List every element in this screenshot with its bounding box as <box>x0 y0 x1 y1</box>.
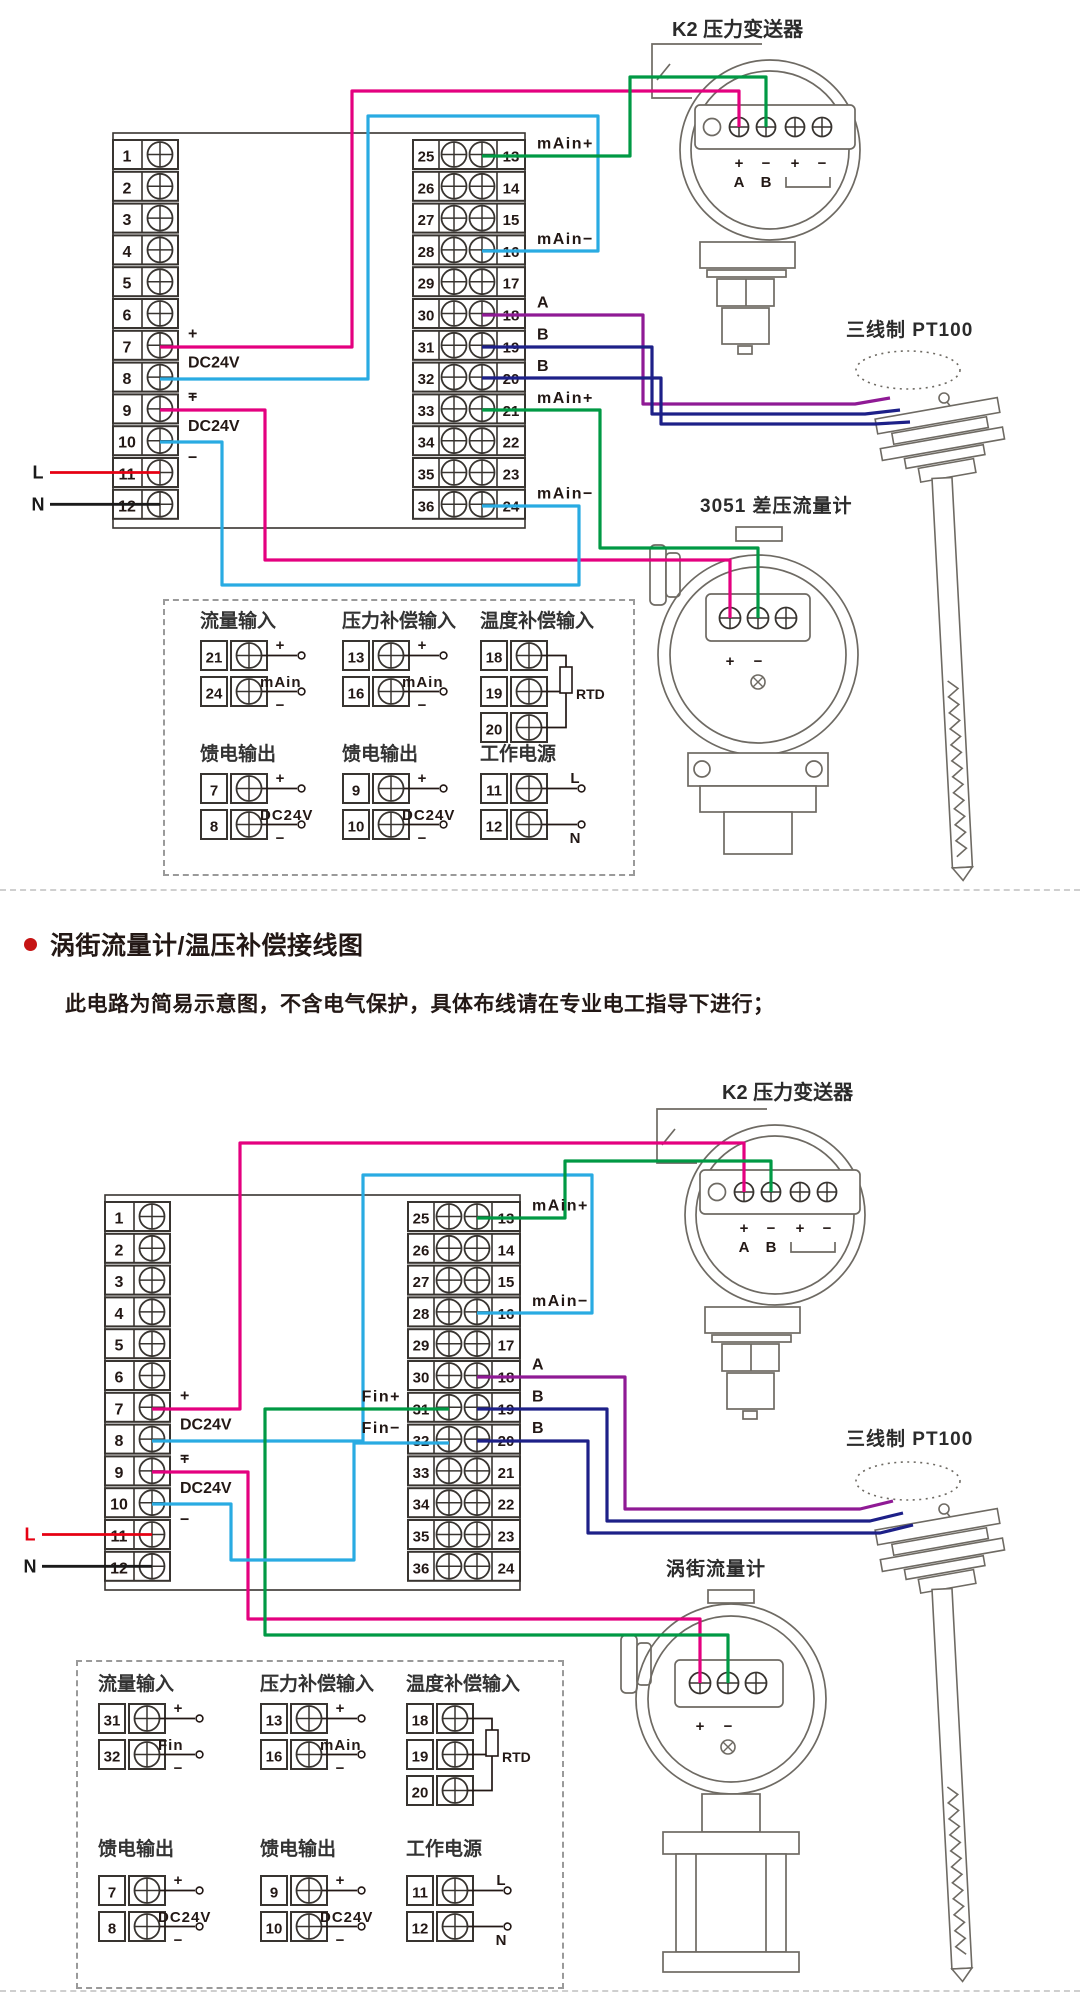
legend-terminal-number: 10 <box>348 819 365 836</box>
screw-terminal-icon <box>437 1331 462 1356</box>
terminal-number: 3 <box>115 1274 124 1291</box>
transmitter-terminal-mark: − <box>767 1220 776 1237</box>
legend-working-power: 工作电源11L12N <box>480 742 650 860</box>
flowmeter-terminal-mark: + <box>726 653 735 670</box>
dc24v-annotation: + <box>180 1387 189 1404</box>
legend-polarity-tag: − <box>174 1760 183 1777</box>
signal-annotation: mAin− <box>532 1293 589 1310</box>
terminal-number: 1 <box>123 149 132 166</box>
screw-terminal-icon <box>517 679 542 704</box>
legend-polarity-tag: + <box>276 772 285 787</box>
signal-annotation: A <box>537 295 550 312</box>
transmitter-terminal-mark: + <box>740 1220 749 1237</box>
power-label: N <box>24 1556 37 1576</box>
screw-terminal-icon <box>437 1268 462 1293</box>
terminal-number: 9 <box>115 1465 124 1482</box>
screw-terminal-icon <box>437 1363 462 1388</box>
red-bullet-icon <box>24 938 37 951</box>
mount-bracket-glyph <box>791 1242 835 1252</box>
transmitter-terminal-mark: + <box>791 155 800 172</box>
signal-annotation: A <box>532 1357 545 1374</box>
screw-terminal-icon <box>786 118 805 137</box>
screw-terminal-icon <box>140 1299 165 1324</box>
screw-terminal-icon <box>140 1204 165 1229</box>
screw-terminal-icon <box>237 643 262 668</box>
screw-terminal-icon <box>237 679 262 704</box>
power-label: L <box>33 463 44 483</box>
legend-mid-label: DC24V <box>158 1909 211 1926</box>
right-terminal-strip: 2513261427152816291730183119322033213422… <box>408 1202 520 1581</box>
legend-terminal-number: 9 <box>270 1885 278 1902</box>
legend-terminal-number: 20 <box>486 722 503 739</box>
screw-terminal-icon <box>237 812 262 837</box>
screw-terminal-icon <box>140 1395 165 1420</box>
legend-terminal-number: 16 <box>348 686 365 703</box>
legend-rows: 7+8−DC24V <box>98 1874 268 1962</box>
terminal-number: 36 <box>418 498 435 515</box>
legend-section-title: 压力补偿输入 <box>260 1672 430 1698</box>
rtd-label: RTD <box>576 686 605 702</box>
section-title: 涡街流量计/温压补偿接线图 <box>50 926 363 962</box>
dc24v-annotation: + <box>188 389 197 406</box>
screw-terminal-icon <box>443 1778 468 1803</box>
transmitter-terminal-mark: − <box>823 1220 832 1237</box>
screw-terminal-icon <box>517 812 542 837</box>
cable-loop-outline <box>856 351 960 389</box>
transmitter-label: K2 压力变送器 <box>672 17 804 41</box>
page: 123456789101112+DC24V−+DC24V−LN251326142… <box>0 0 1080 1997</box>
legend-rows: 9+10−DC24V <box>260 1874 430 1962</box>
transmitter-terminal-letter: B <box>766 1239 777 1256</box>
legend-polarity-tag: − <box>336 1932 345 1949</box>
terminal-number: 29 <box>413 1338 430 1355</box>
pt100-label: 三线制 PT100 <box>846 1427 973 1450</box>
flowmeter-terminal-mark: + <box>696 1718 705 1735</box>
screw-terminal-icon <box>140 1427 165 1452</box>
legend-temp-comp-input: 温度补偿输入181920RTD <box>480 609 650 763</box>
legend-terminal-number: 24 <box>206 686 223 703</box>
legend-polarity-tag: + <box>418 639 427 654</box>
screw-terminal-icon <box>442 396 467 421</box>
terminal-number: 10 <box>110 1497 128 1514</box>
pt100-probe <box>932 477 973 880</box>
screw-terminal-icon <box>379 643 404 668</box>
legend-temp-comp-input: 温度补偿输入181920RTD <box>406 1672 576 1826</box>
terminal-number: 3 <box>123 212 132 229</box>
terminal-number: 15 <box>503 212 520 229</box>
legend-terminal-number: 12 <box>412 1921 429 1938</box>
screw-terminal-icon <box>465 1458 490 1483</box>
terminal-number: 8 <box>115 1433 124 1450</box>
terminal-number: 9 <box>123 403 132 420</box>
screw-terminal-icon <box>442 237 467 262</box>
transmitter-label: K2 压力变送器 <box>722 1080 854 1104</box>
screw-terminal-icon <box>442 333 467 358</box>
screw-terminal-icon <box>297 1706 322 1731</box>
legend-flow-input: 流量输入31+32−Fin <box>98 1672 268 1790</box>
legend-terminal-number: 13 <box>266 1713 283 1730</box>
screw-terminal-icon <box>442 301 467 326</box>
legend-section-title: 馈电输出 <box>260 1837 430 1863</box>
transmitter-terminal-letter: A <box>734 174 745 191</box>
legend-mid-label: mAin <box>260 674 302 691</box>
terminal-number: 27 <box>418 212 435 229</box>
legend-feed-output-2: 馈电输出9+10−DC24V <box>260 1837 430 1962</box>
dc24v-annotation: DC24V <box>188 355 240 372</box>
legend-box: 流量输入21+24−mAin压力补偿输入13+16−mAin温度补偿输入1819… <box>163 599 635 876</box>
screw-terminal-icon <box>443 1706 468 1731</box>
screw-terminal-icon <box>148 206 173 231</box>
screw-terminal-icon <box>465 1268 490 1293</box>
terminal-number: 34 <box>413 1497 430 1514</box>
legend-terminal-number: 11 <box>486 783 502 800</box>
terminal-number: 1 <box>115 1211 124 1228</box>
screw-terminal-icon <box>437 1395 462 1420</box>
legend-mid-label: DC24V <box>320 1909 373 1926</box>
terminal-number: 6 <box>123 308 132 325</box>
legend-terminal-number: 16 <box>266 1749 283 1766</box>
terminal-number: 14 <box>503 180 520 197</box>
transmitter-terminal-letter: B <box>761 174 772 191</box>
screw-terminal-icon <box>437 1554 462 1579</box>
screw-terminal-icon <box>813 118 832 137</box>
screw-terminal-icon <box>465 1236 490 1261</box>
screw-terminal-icon <box>470 492 495 517</box>
signal-annotation: B <box>537 358 550 375</box>
legend-rows: 181920RTD <box>406 1702 576 1826</box>
terminal-number: 15 <box>498 1274 515 1291</box>
transmitter-terminal-mark: + <box>735 155 744 172</box>
legend-section-title: 温度补偿输入 <box>406 1672 576 1698</box>
legend-terminal-number: 7 <box>108 1885 116 1902</box>
legend-terminal-number: 19 <box>486 686 503 703</box>
legend-rows: 13+16−mAin <box>260 1702 430 1790</box>
terminal-number: 24 <box>498 1560 515 1577</box>
screw-terminal-icon <box>470 428 495 453</box>
screw-terminal-icon <box>470 333 495 358</box>
legend-polarity-tag: L <box>496 1874 505 1889</box>
terminal-number: 22 <box>503 435 520 452</box>
terminal-number: 2 <box>123 180 132 197</box>
terminal-number: 35 <box>418 467 435 484</box>
legend-working-power: 工作电源11L12N <box>406 1837 576 1962</box>
screw-terminal-icon <box>517 715 542 740</box>
screw-terminal-icon <box>443 1878 468 1903</box>
screw-terminal-icon <box>135 1742 160 1767</box>
screw-terminal-icon <box>818 1183 837 1202</box>
terminal-number: 27 <box>413 1274 430 1291</box>
screw-terminal-icon <box>465 1522 490 1547</box>
signal-annotation: mAin+ <box>537 136 594 153</box>
screw-terminal-icon <box>140 1331 165 1356</box>
legend-mid-label: mAin <box>402 674 444 691</box>
terminal-number: 26 <box>413 1242 430 1259</box>
terminal-number: 14 <box>498 1242 515 1259</box>
signal-annotation: B <box>537 326 550 343</box>
screw-terminal-icon <box>442 174 467 199</box>
legend-polarity-tag: − <box>276 830 285 847</box>
screw-terminal-icon <box>135 1878 160 1903</box>
signal-annotation: mAin+ <box>532 1198 589 1215</box>
terminal-number: 21 <box>498 1465 515 1482</box>
pt100-probe <box>932 1588 973 1982</box>
screw-terminal-icon <box>148 333 173 358</box>
legend-rows: 11L12N <box>480 772 650 860</box>
terminal-number: 22 <box>498 1497 515 1514</box>
screw-terminal-icon <box>237 776 262 801</box>
dc24v-annotation: DC24V <box>180 1417 232 1434</box>
wire <box>152 1443 449 1560</box>
screw-terminal-icon <box>442 269 467 294</box>
signal-annotation: Fin+ <box>362 1388 401 1405</box>
dc24v-annotation: − <box>180 1512 189 1529</box>
legend-pressure-comp-input: 压力补偿输入13+16−mAin <box>260 1672 430 1790</box>
legend-terminal-number: 32 <box>104 1749 121 1766</box>
screw-terminal-icon <box>135 1914 160 1939</box>
legend-polarity-tag: + <box>276 639 285 654</box>
ground-bolt-icon <box>721 1740 735 1754</box>
screw-terminal-icon <box>443 1914 468 1939</box>
signal-annotation: mAin+ <box>537 390 594 407</box>
screw-terminal-icon <box>379 812 404 837</box>
screw-terminal-icon <box>746 1673 767 1694</box>
signal-annotation: B <box>532 1420 545 1437</box>
rtd-resistor-icon <box>560 667 572 693</box>
signal-annotation: mAin− <box>537 231 594 248</box>
terminal-number: 5 <box>115 1338 124 1355</box>
flowmeter-terminal-mark: − <box>754 653 763 670</box>
legend-terminal-number: 31 <box>104 1713 121 1730</box>
legend-polarity-tag: + <box>336 1874 345 1889</box>
screw-terminal-icon <box>437 1204 462 1229</box>
terminal-number: 17 <box>498 1338 515 1355</box>
terminal-number: 11 <box>119 467 136 484</box>
legend-polarity-tag: + <box>418 772 427 787</box>
legend-terminal-number: 21 <box>206 650 223 667</box>
legend-polarity-tag: − <box>418 697 427 714</box>
screw-terminal-icon <box>140 1236 165 1261</box>
terminal-number: 6 <box>115 1370 124 1387</box>
legend-polarity-tag: N <box>570 830 581 847</box>
screw-terminal-icon <box>517 776 542 801</box>
screw-terminal-icon <box>517 643 542 668</box>
terminal-number: 28 <box>418 244 435 261</box>
terminal-number: 23 <box>498 1529 515 1546</box>
legend-polarity-tag: + <box>174 1702 183 1717</box>
legend-polarity-tag: L <box>570 772 579 787</box>
legend-terminal-number: 18 <box>486 650 503 667</box>
legend-mid-label: Fin <box>158 1737 184 1754</box>
screw-terminal-icon <box>437 1427 462 1452</box>
screw-terminal-icon <box>470 174 495 199</box>
legend-section-title: 馈电输出 <box>98 1837 268 1863</box>
screw-terminal-icon <box>148 174 173 199</box>
screw-terminal-icon <box>443 1742 468 1767</box>
pt100-label: 三线制 PT100 <box>846 318 973 341</box>
legend-polarity-tag: + <box>336 1702 345 1717</box>
cable-loop-outline <box>856 1462 960 1500</box>
legend-section-title: 流量输入 <box>98 1672 268 1698</box>
terminal-number: 33 <box>418 403 435 420</box>
legend-feed-output-1: 馈电输出7+8−DC24V <box>98 1837 268 1962</box>
screw-terminal-icon <box>437 1522 462 1547</box>
section-title-block: 涡街流量计/温压补偿接线图 此电路为简易示意图，不含电气保护，具体布线请在专业电… <box>24 926 1044 1018</box>
transmitter-terminal-letter: A <box>739 1239 750 1256</box>
dc24v-annotation: − <box>188 450 197 467</box>
terminal-number: 17 <box>503 276 520 293</box>
terminal-number: 33 <box>413 1465 430 1482</box>
legend-terminal-number: 20 <box>412 1785 429 1802</box>
wire <box>477 1441 913 1533</box>
screw-terminal-icon <box>442 492 467 517</box>
dashed-divider <box>0 889 1080 891</box>
signal-annotation: Fin− <box>362 1420 401 1437</box>
screw-terminal-icon <box>465 1331 490 1356</box>
screw-terminal-icon <box>470 206 495 231</box>
legend-polarity-tag: + <box>174 1874 183 1889</box>
terminal-number: 34 <box>418 435 435 452</box>
screw-terminal-icon <box>148 301 173 326</box>
legend-terminal-number: 13 <box>348 650 365 667</box>
power-label: L <box>25 1525 36 1545</box>
legend-terminal-number: 18 <box>412 1713 429 1730</box>
legend-polarity-tag: − <box>276 697 285 714</box>
legend-section-title: 温度补偿输入 <box>480 609 650 635</box>
dashed-divider <box>0 1990 1080 1992</box>
signal-annotation: mAin− <box>537 485 594 502</box>
screw-terminal-icon <box>465 1554 490 1579</box>
screw-terminal-icon <box>470 269 495 294</box>
screw-terminal-icon <box>148 269 173 294</box>
terminal-number: 7 <box>123 339 132 356</box>
screw-terminal-icon <box>379 679 404 704</box>
terminal-number: 4 <box>123 244 132 261</box>
terminal-number: 30 <box>418 308 435 325</box>
pt100-head <box>875 1509 1009 1599</box>
legend-polarity-tag: N <box>496 1932 507 1949</box>
legend-polarity-tag: − <box>336 1760 345 1777</box>
legend-section-title: 工作电源 <box>480 742 650 768</box>
screw-terminal-icon <box>470 460 495 485</box>
legend-terminal-number: 10 <box>266 1921 283 1938</box>
signal-annotation: B <box>532 1388 545 1405</box>
flowmeter-terminal-mark: − <box>724 1718 733 1735</box>
screw-terminal-icon <box>379 776 404 801</box>
legend-box: 流量输入31+32−Fin压力补偿输入13+16−mAin温度补偿输入18192… <box>76 1660 564 1989</box>
dc24v-annotation: DC24V <box>180 1480 232 1497</box>
screw-terminal-icon <box>297 1878 322 1903</box>
terminal-number: 10 <box>118 435 136 452</box>
legend-polarity-tag: − <box>418 830 427 847</box>
terminal-number: 32 <box>418 371 435 388</box>
screw-terminal-icon <box>140 1363 165 1388</box>
pressure-transmitter <box>657 1109 865 1419</box>
screw-terminal-icon <box>437 1490 462 1515</box>
screw-terminal-icon <box>148 237 173 262</box>
screw-terminal-icon <box>135 1706 160 1731</box>
legend-mid-label: DC24V <box>402 807 455 824</box>
terminal-number: 25 <box>418 149 435 166</box>
mount-bracket-glyph <box>786 177 830 187</box>
right-terminal-strip: 2513261427152816291730183119322033213422… <box>413 140 525 519</box>
screw-terminal-icon <box>442 142 467 167</box>
screw-terminal-icon <box>442 460 467 485</box>
ground-bolt-icon <box>751 675 765 689</box>
legend-mid-label: mAin <box>320 1737 362 1754</box>
flowmeter-label: 涡街流量计 <box>666 1557 766 1580</box>
legend-polarity-tag: − <box>174 1932 183 1949</box>
screw-terminal-icon <box>140 1268 165 1293</box>
legend-mid-label: DC24V <box>260 807 313 824</box>
screw-terminal-icon <box>442 365 467 390</box>
section-note: 此电路为简易示意图，不含电气保护，具体布线请在专业电工指导下进行； <box>65 988 1044 1018</box>
legend-terminal-number: 7 <box>210 783 218 800</box>
screw-terminal-icon <box>465 1395 490 1420</box>
screw-terminal-icon <box>791 1183 810 1202</box>
legend-rows: 31+32−Fin <box>98 1702 268 1790</box>
terminal-number: 25 <box>413 1211 430 1228</box>
terminal-number: 4 <box>115 1306 124 1323</box>
legend-terminal-number: 11 <box>412 1885 428 1902</box>
dc24v-annotation: + <box>188 325 197 342</box>
screw-terminal-icon <box>297 1914 322 1939</box>
flow-meter <box>650 527 858 854</box>
screw-terminal-icon <box>442 206 467 231</box>
dc24v-annotation: DC24V <box>188 418 240 435</box>
screw-terminal-icon <box>776 608 797 629</box>
terminal-number: 30 <box>413 1370 430 1387</box>
legend-terminal-number: 8 <box>108 1921 116 1938</box>
transmitter-terminal-mark: − <box>762 155 771 172</box>
screw-terminal-icon <box>437 1458 462 1483</box>
terminal-number: 7 <box>115 1401 124 1418</box>
terminal-number: 5 <box>123 276 132 293</box>
terminal-number: 12 <box>110 1560 128 1577</box>
rtd-label: RTD <box>502 1749 531 1765</box>
terminal-number: 2 <box>115 1242 124 1259</box>
left-terminal-strip: 123456789101112+DC24V−+DC24V− <box>105 1202 232 1581</box>
screw-terminal-icon <box>442 428 467 453</box>
screw-terminal-icon <box>437 1236 462 1261</box>
terminal-number: 8 <box>123 371 132 388</box>
terminal-number: 11 <box>111 1529 128 1546</box>
screw-terminal-icon <box>297 1742 322 1767</box>
screw-terminal-icon <box>148 365 173 390</box>
screw-terminal-icon <box>465 1427 490 1452</box>
legend-rows: 11L12N <box>406 1874 576 1962</box>
legend-section-title: 工作电源 <box>406 1837 576 1863</box>
legend-terminal-number: 8 <box>210 819 218 836</box>
screw-terminal-icon <box>148 142 173 167</box>
terminal-number: 28 <box>413 1306 430 1323</box>
pt100-sensor <box>856 1462 1009 1982</box>
terminal-number: 26 <box>418 180 435 197</box>
terminal-number: 36 <box>413 1560 430 1577</box>
power-label: N <box>32 494 45 514</box>
flowmeter-label: 3051 差压流量计 <box>700 494 853 517</box>
pt100-sensor <box>856 351 1009 881</box>
legend-terminal-number: 19 <box>412 1749 429 1766</box>
rtd-resistor-icon <box>486 1730 498 1756</box>
terminal-number: 29 <box>418 276 435 293</box>
transmitter-terminal-mark: − <box>818 155 827 172</box>
transmitter-terminal-mark: + <box>796 1220 805 1237</box>
legend-terminal-number: 12 <box>486 819 503 836</box>
legend-terminal-number: 9 <box>352 783 360 800</box>
terminal-number: 35 <box>413 1529 430 1546</box>
terminal-number: 12 <box>118 498 136 515</box>
screw-terminal-icon <box>437 1299 462 1324</box>
